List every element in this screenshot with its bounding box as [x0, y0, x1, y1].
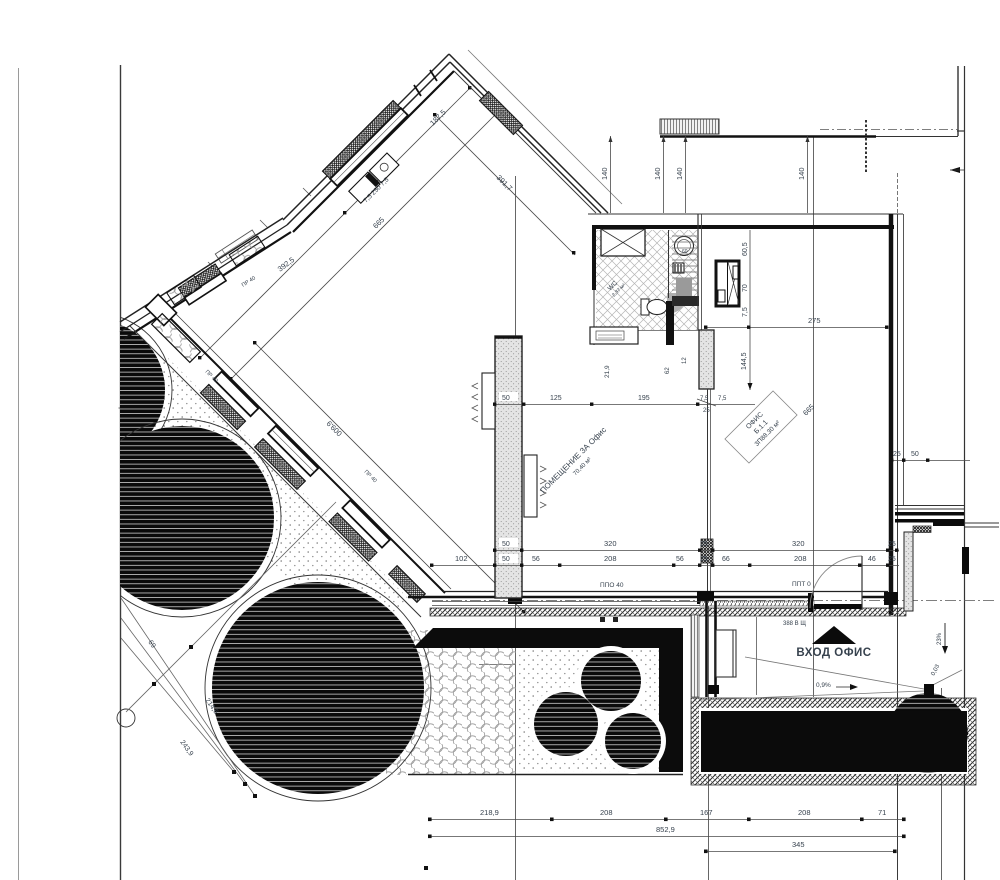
svg-text:102: 102 [455, 554, 468, 563]
svg-text:140: 140 [600, 167, 609, 180]
svg-text:7,5: 7,5 [718, 396, 727, 402]
svg-text:140: 140 [797, 167, 806, 180]
svg-text:66: 66 [722, 556, 730, 563]
svg-text:25: 25 [700, 556, 708, 563]
svg-text:208: 208 [794, 554, 807, 563]
svg-text:218,9: 218,9 [480, 808, 499, 817]
svg-text:195: 195 [638, 395, 650, 402]
svg-text:50: 50 [502, 541, 510, 548]
svg-text:46: 46 [868, 556, 876, 563]
svg-text:320: 320 [792, 539, 805, 548]
svg-text:0,9%: 0,9% [816, 682, 831, 689]
svg-text:167: 167 [700, 808, 713, 817]
svg-text:7,5: 7,5 [742, 307, 749, 317]
svg-text:23%: 23% [937, 632, 943, 645]
svg-text:125: 125 [550, 395, 562, 402]
svg-text:7,5: 7,5 [700, 396, 709, 402]
svg-text:25: 25 [888, 541, 896, 548]
svg-text:25: 25 [893, 451, 901, 458]
svg-text:208: 208 [600, 808, 613, 817]
svg-text:208: 208 [798, 808, 811, 817]
svg-text:50: 50 [502, 556, 510, 563]
svg-text:56: 56 [532, 556, 540, 563]
svg-text:25: 25 [700, 541, 708, 548]
svg-text:275: 275 [808, 316, 821, 325]
svg-text:50: 50 [502, 395, 510, 402]
svg-text:12: 12 [682, 357, 688, 364]
svg-text:25: 25 [888, 556, 896, 563]
svg-text:ВХОД ОФИС: ВХОД ОФИС [796, 647, 871, 659]
svg-text:ППТ 0: ППТ 0 [792, 581, 811, 588]
svg-text:388 В Щ: 388 В Щ [783, 621, 806, 627]
svg-text:140: 140 [653, 167, 662, 180]
svg-text:71: 71 [878, 808, 886, 817]
svg-text:62: 62 [665, 367, 671, 374]
svg-text:70: 70 [742, 284, 749, 292]
svg-text:208: 208 [604, 554, 617, 563]
svg-text:852,9: 852,9 [656, 825, 675, 834]
svg-text:50: 50 [911, 451, 919, 458]
svg-text:21,9: 21,9 [604, 365, 611, 378]
svg-text:320: 320 [604, 539, 617, 548]
svg-text:25: 25 [703, 408, 710, 414]
svg-text:140: 140 [675, 167, 684, 180]
svg-text:345: 345 [792, 840, 805, 849]
svg-text:56: 56 [676, 556, 684, 563]
svg-text:144,5: 144,5 [741, 352, 748, 370]
svg-text:60,5: 60,5 [742, 242, 749, 256]
svg-text:ППО 40: ППО 40 [600, 582, 624, 589]
